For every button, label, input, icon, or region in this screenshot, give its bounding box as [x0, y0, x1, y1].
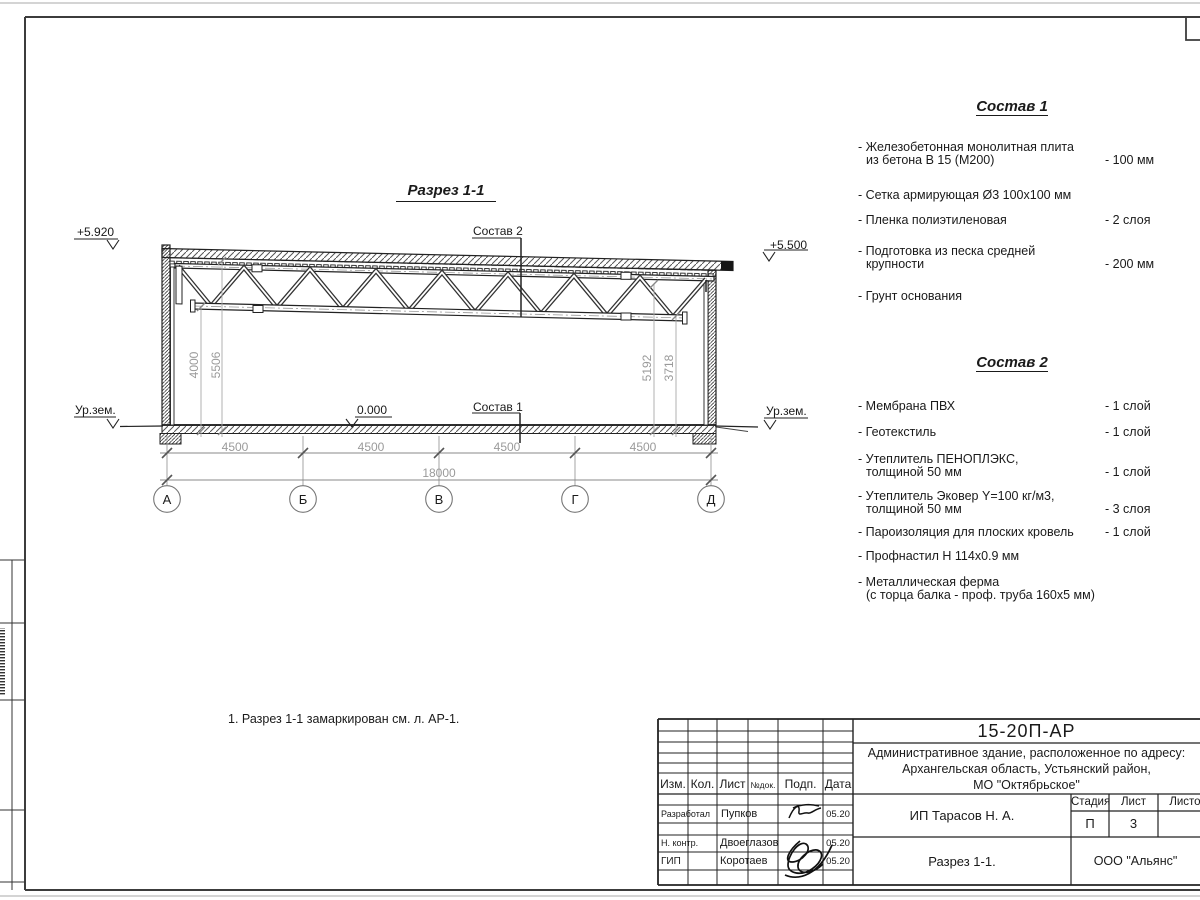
list-item: - Профнастил Н 114х0.9 мм	[858, 550, 1166, 564]
floor-slab	[162, 425, 716, 434]
list-item: - Железобетонная монолитная плита из бет…	[858, 141, 1166, 168]
row-date-2: 05.20	[823, 838, 853, 849]
roof-end-cap	[721, 261, 733, 271]
vertical-dim-lines	[201, 261, 676, 437]
wall-left	[162, 245, 170, 425]
vdim-4000: 4000	[187, 335, 201, 395]
dim-span-4: 4500	[613, 440, 673, 454]
drawing-sheet: { "drawing": { "title": "Разрез 1-1", "n…	[0, 0, 1200, 900]
ground-label-right: Ур.зем.	[766, 404, 807, 418]
axis-label-v: В	[426, 492, 452, 507]
row-name-pupkov: Пупков	[721, 808, 757, 820]
client-name: ИП Тарасов Н. А.	[853, 808, 1071, 823]
ground-line-right	[715, 426, 758, 427]
row-date-1: 05.20	[823, 809, 853, 820]
section-title: Разрез 1-1	[396, 182, 496, 202]
elevation-roof-right: +5.500	[770, 238, 807, 252]
frame-corner-box	[1186, 18, 1200, 40]
elevation-roof-left: +5.920	[77, 225, 114, 239]
list-item: - Пароизоляция для плоских кровель - 1 с…	[858, 526, 1166, 540]
axis-label-b: Б	[290, 492, 316, 507]
col-izm: Изм.	[658, 777, 688, 791]
axis-label-a: А	[154, 492, 180, 507]
doc-code: 15-20П-АР	[853, 721, 1200, 742]
col-list: Лист	[717, 777, 748, 791]
drawing-note: 1. Разрез 1-1 замаркирован см. л. АР-1.	[228, 712, 459, 726]
list-item: - Пленка полиэтиленовая - 2 слоя	[858, 214, 1166, 228]
row-date-3: 05.20	[823, 856, 853, 867]
axis-label-d: Д	[698, 492, 724, 507]
ground-label-left: Ур.зем.	[75, 403, 116, 417]
column-right	[704, 281, 708, 425]
sostav1-list: Состав 1 - Железобетонная монолитная пли…	[858, 100, 1166, 303]
frame-left-strip	[0, 560, 25, 890]
ground-line-left	[120, 426, 163, 427]
signature-razrabotal	[789, 805, 821, 818]
sostav2-list: Состав 2 - Мембрана ПВХ - 1 слой - Геоте…	[858, 356, 1166, 603]
list-item: - Сетка армирующая Ø3 100х100 мм	[858, 189, 1166, 203]
dim-span-2: 4500	[341, 440, 401, 454]
stage-value: П	[1071, 816, 1109, 831]
vdim-5192: 5192	[640, 338, 654, 398]
sheet-name: Разрез 1-1.	[853, 854, 1071, 869]
row-role-nkontr: Н. контр.	[661, 838, 698, 848]
leader-label-sostav2: Состав 2	[473, 224, 523, 238]
row-name-korotaev: Коротаев	[720, 855, 768, 867]
list-item: - Металлическая ферма (с торца балка - п…	[858, 576, 1166, 603]
truss-end-post	[176, 266, 182, 304]
list-item: - Утеплитель Эковер Y=100 кг/м3, толщино…	[858, 490, 1166, 517]
sostav1-title: Состав 1	[858, 100, 1166, 116]
elevation-floor: 0.000	[357, 403, 387, 417]
sheets-label: Листов	[1158, 796, 1200, 808]
stage-label: Стадия	[1071, 796, 1109, 808]
row-role-gip: ГИП	[661, 856, 681, 867]
col-ndoc: №док.	[748, 780, 778, 790]
col-kol: Кол.	[688, 777, 717, 791]
dim-span-1: 4500	[205, 440, 265, 454]
vdim-3718: 3718	[662, 338, 676, 398]
column-left	[171, 267, 175, 425]
company-name: ООО "Альянс"	[1071, 854, 1200, 868]
dim-total: 18000	[409, 466, 469, 480]
footing-left	[160, 434, 181, 445]
sostav2-title: Состав 2	[858, 356, 1166, 372]
row-name-dvoeglazov: Двоеглазов	[720, 837, 778, 849]
list-item: - Геотекстиль - 1 слой	[858, 426, 1166, 440]
footing-right	[693, 434, 716, 445]
sheet-value: 3	[1109, 816, 1158, 831]
list-item: - Грунт основания	[858, 290, 1166, 304]
vdim-5506: 5506	[209, 335, 223, 395]
axis-label-g: Г	[562, 492, 588, 507]
list-item: - Подготовка из песка средней крупности …	[858, 245, 1166, 272]
wall-right	[708, 270, 716, 425]
vertical-text-sliver	[0, 628, 6, 696]
leader-label-sostav1: Состав 1	[473, 400, 523, 414]
address-line1: Административное здание, расположенное п…	[853, 746, 1200, 760]
col-data: Дата	[823, 777, 853, 791]
sheet-label: Лист	[1109, 796, 1158, 808]
col-podp: Подп.	[778, 777, 823, 791]
row-role-razrabotal: Разработал	[661, 809, 710, 819]
dim-span-3: 4500	[477, 440, 537, 454]
address-line3: МО "Октябрьское"	[853, 778, 1200, 792]
address-line2: Архангельская область, Устьянский район,	[853, 762, 1200, 776]
list-item: - Утеплитель ПЕНОПЛЭКС, толщиной 50 мм -…	[858, 453, 1166, 480]
list-item: - Мембрана ПВХ - 1 слой	[858, 400, 1166, 414]
